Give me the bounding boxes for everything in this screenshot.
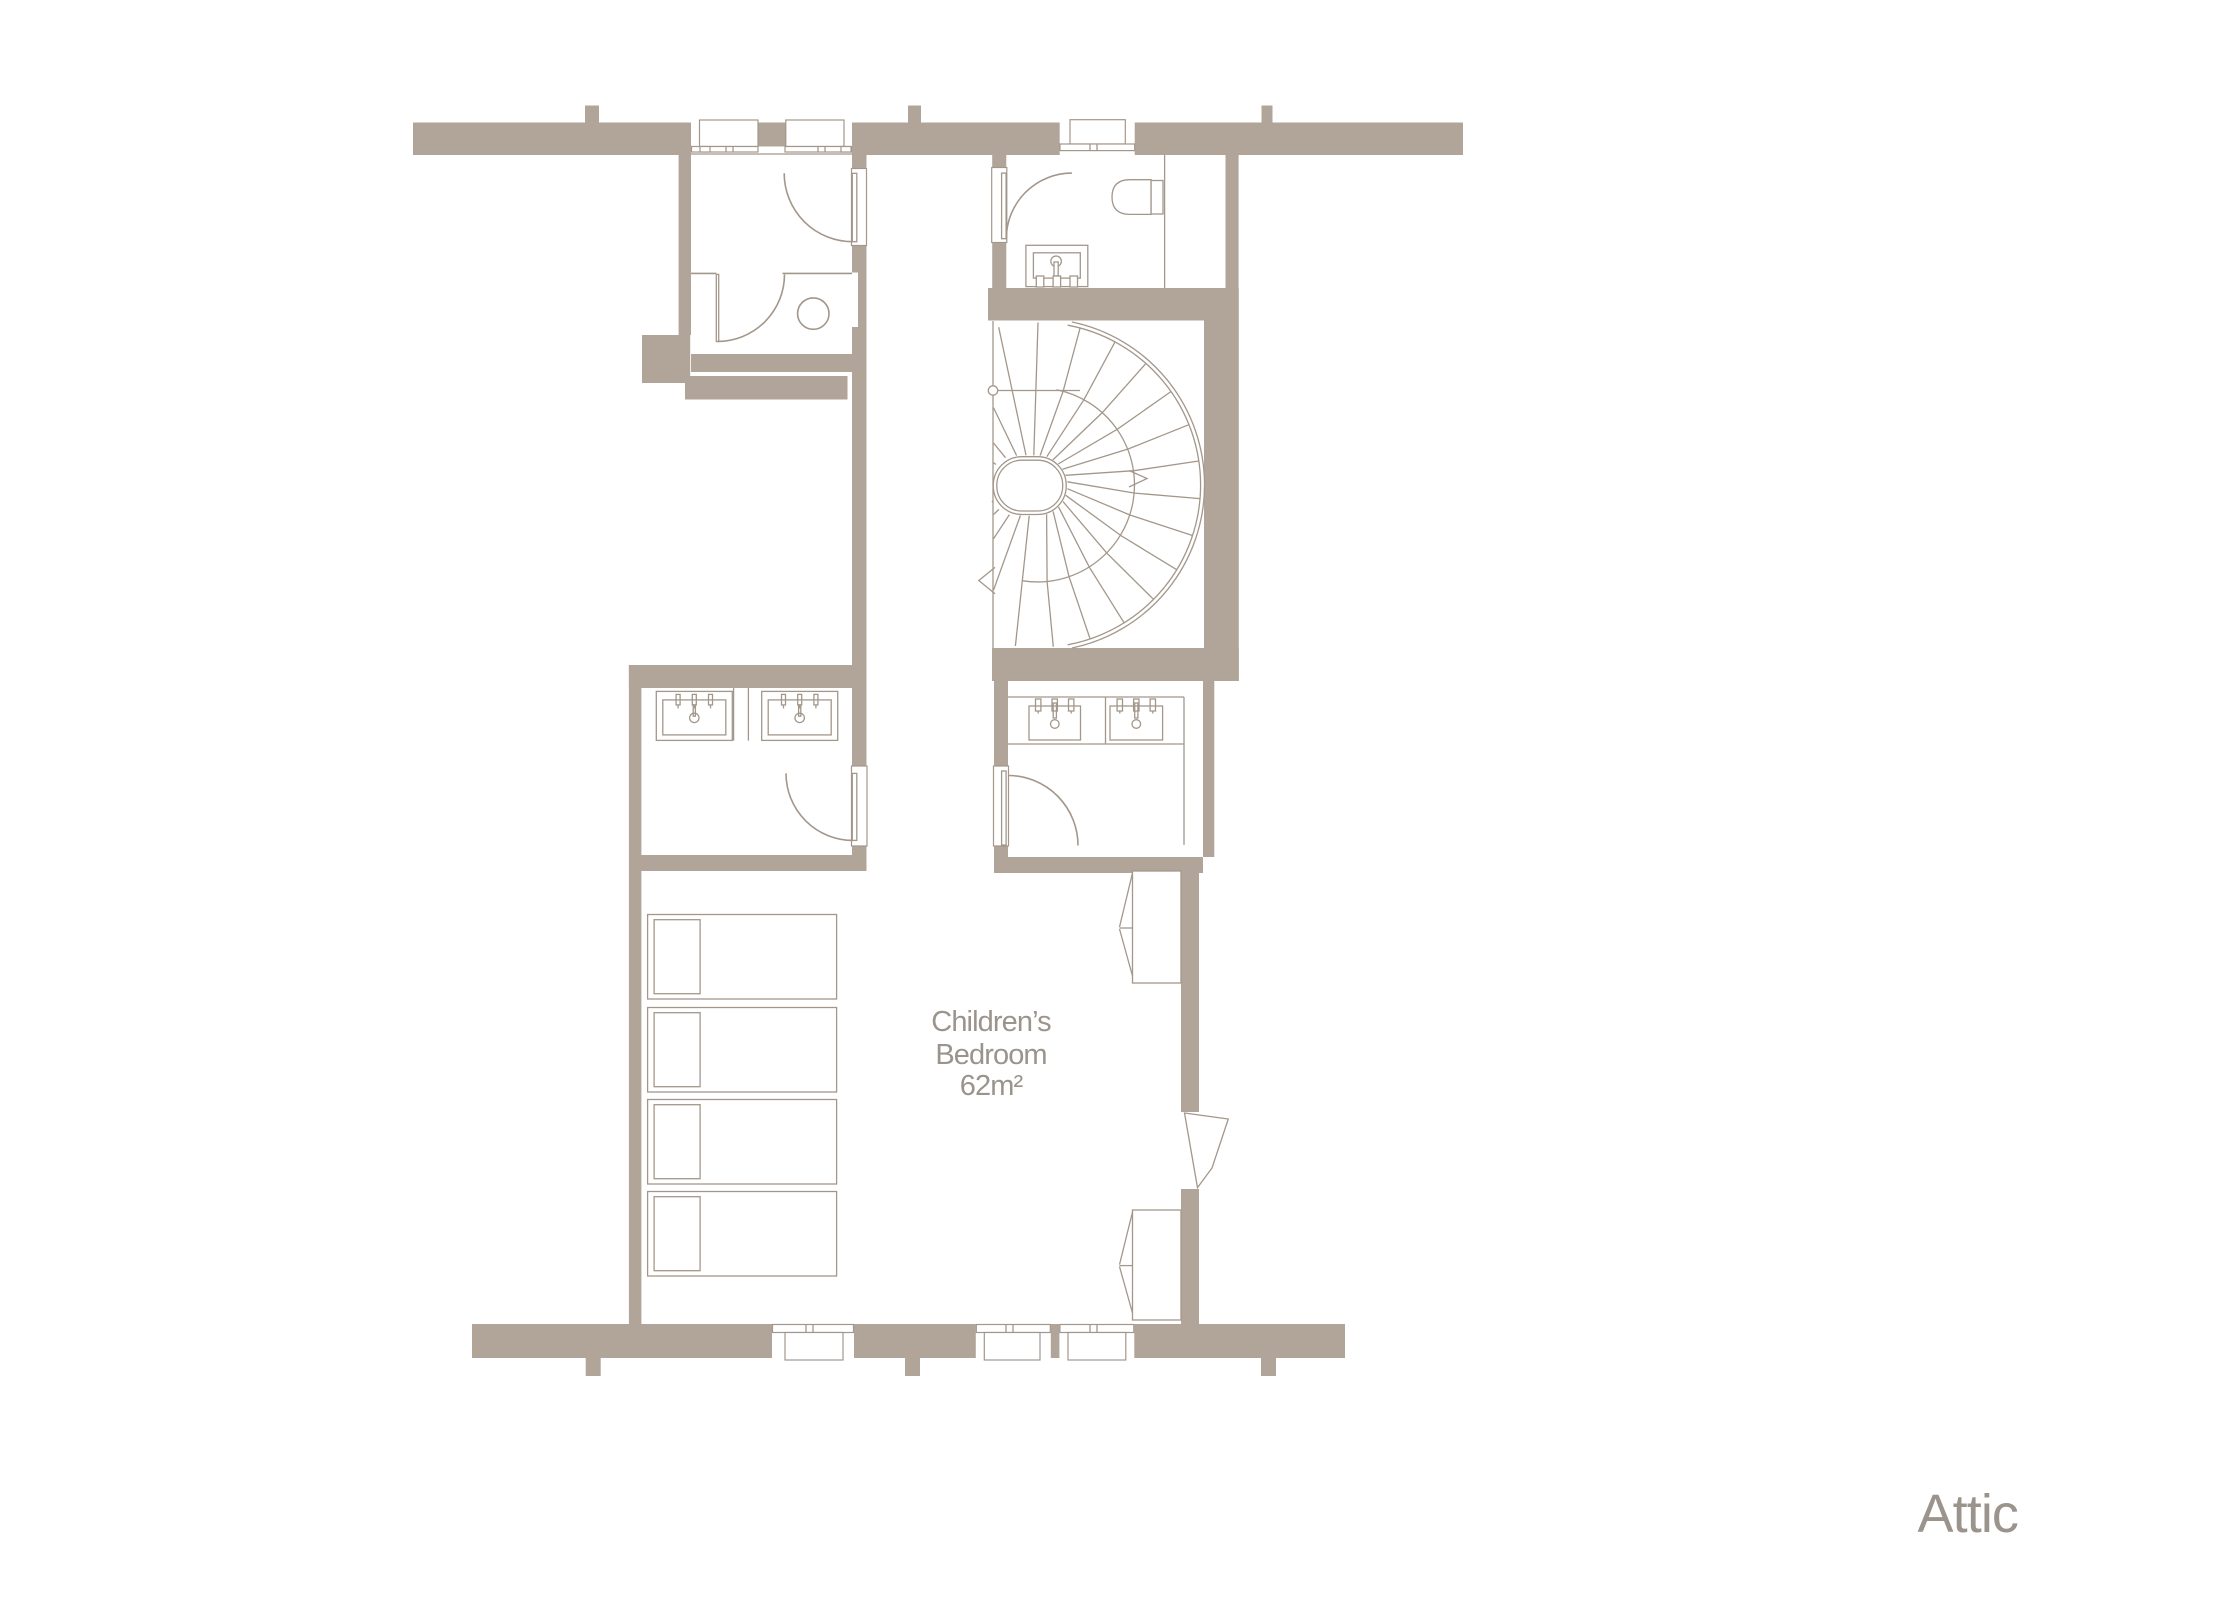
svg-text:Attic: Attic xyxy=(1918,1484,2019,1544)
svg-text:Children’s: Children’s xyxy=(931,1006,1051,1038)
svg-text:62m²: 62m² xyxy=(960,1070,1024,1102)
svg-text:Bedroom: Bedroom xyxy=(935,1039,1046,1071)
